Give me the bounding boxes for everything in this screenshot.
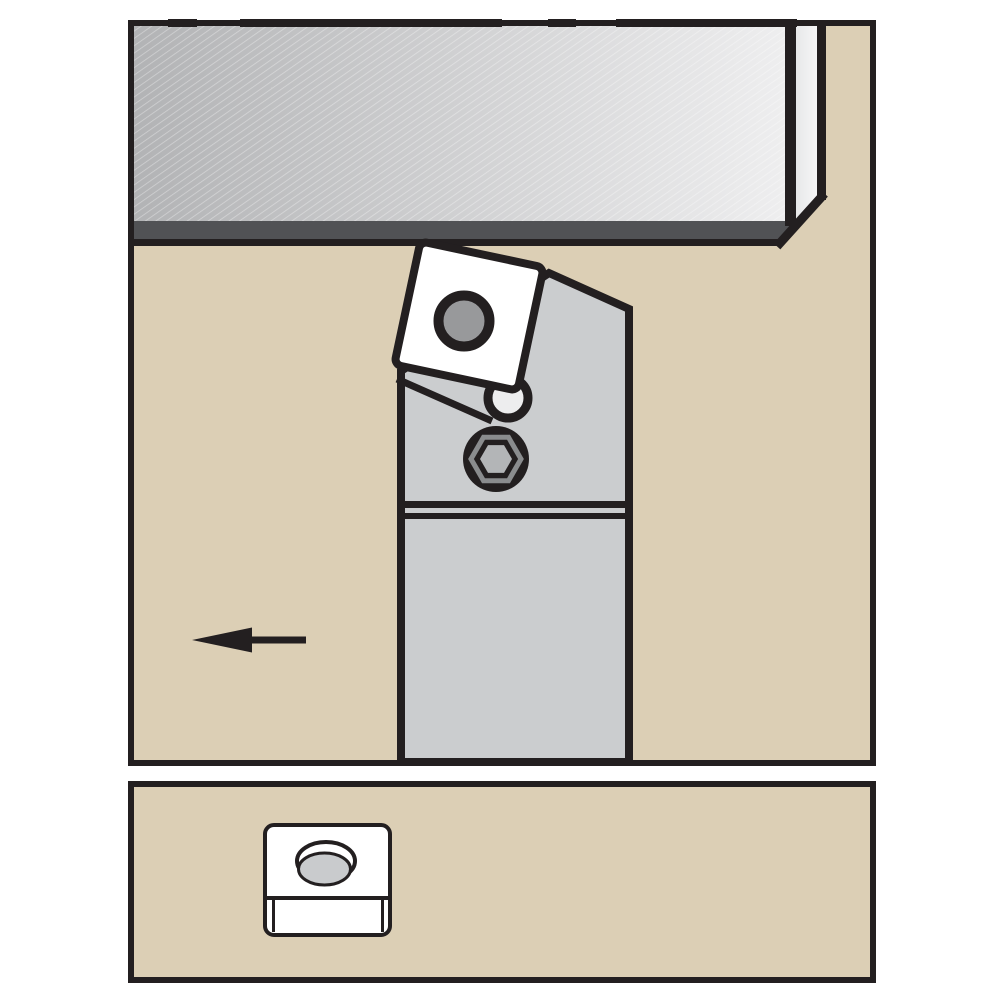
workpiece-edge-strip <box>134 221 796 239</box>
workpiece-hatch-texture <box>134 26 785 239</box>
tool-holder <box>394 241 633 762</box>
detail-view-panel <box>131 784 873 980</box>
top-dash <box>548 19 576 27</box>
holder-shim-line-lower <box>397 513 633 519</box>
workpiece-bottom-edge-line <box>134 239 788 246</box>
workpiece-end-edge-line <box>817 26 826 200</box>
machining-diagram <box>0 0 1000 1000</box>
detail-insert-right-corner-line <box>381 900 384 932</box>
diagram-canvas <box>0 0 1000 1000</box>
workpiece-top-dashes <box>168 19 797 27</box>
workpiece-end-face <box>796 26 817 227</box>
detail-insert <box>265 825 390 935</box>
insert-center-hole <box>439 296 490 347</box>
top-dash <box>168 19 197 27</box>
detail-hole-inner <box>299 853 351 885</box>
hex-socket-screw <box>463 426 529 492</box>
top-dash <box>240 19 502 27</box>
top-dash <box>616 19 797 27</box>
workpiece <box>134 19 826 246</box>
detail-insert-edge-line <box>265 896 390 900</box>
holder-shim-line-upper <box>397 501 633 508</box>
detail-insert-left-corner-line <box>272 900 275 932</box>
workpiece-corner-line <box>785 26 796 226</box>
